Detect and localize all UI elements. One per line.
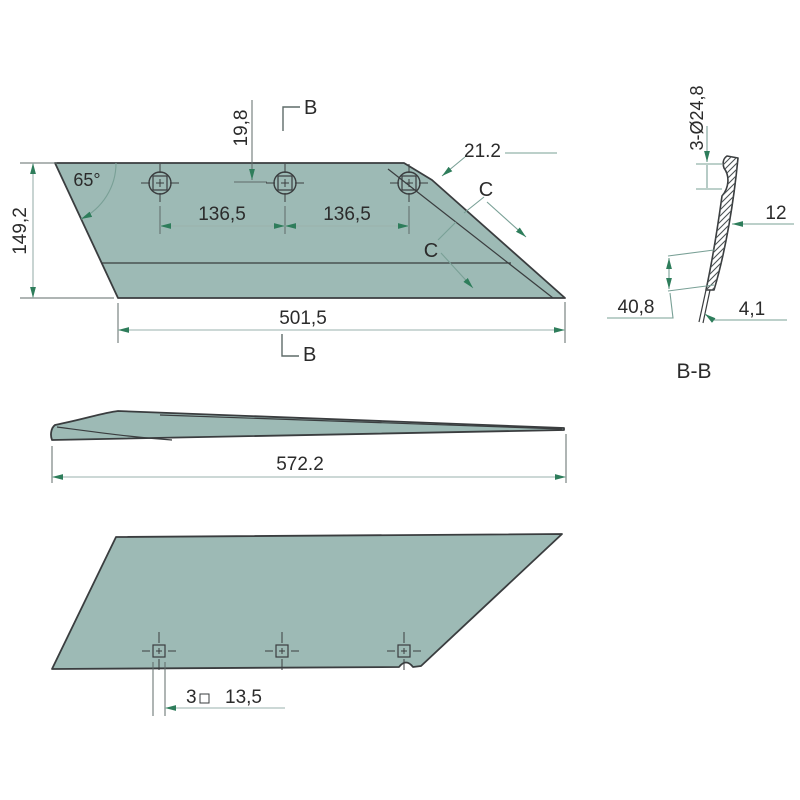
leader-line — [442, 157, 465, 176]
extension-line — [153, 662, 165, 716]
technical-drawing-page: 149,2 65° 19,8 136,5 136,5 21.2 — [0, 0, 800, 800]
dimension-label-width: 501,5 — [279, 308, 327, 329]
dimension-label-angle: 65° — [73, 170, 100, 190]
view-direction-arrow — [487, 202, 526, 237]
square-symbol-icon — [200, 694, 209, 703]
dimension-hole-diameter: 3-Ø24,8 — [687, 85, 722, 189]
dimension-label-edge-thickness: 4,1 — [739, 299, 765, 320]
dimension-label-length: 572.2 — [276, 454, 324, 475]
dimension-label-bevel-width: 21.2 — [464, 141, 501, 162]
dimension-label-spacing-left: 136,5 — [198, 204, 246, 225]
dimension-width: 501,5 — [118, 302, 565, 343]
section-title: B-B — [676, 360, 711, 383]
section-hatch-fill — [706, 156, 738, 290]
section-label-c-lower: C — [424, 240, 438, 262]
section-marker-b-bottom: B — [282, 334, 316, 366]
dimension-label-hole-offset: 19,8 — [231, 110, 252, 147]
dimension-label-hole-spec: 3-Ø24,8 — [687, 85, 707, 150]
plowshare-drawing: 149,2 65° 19,8 136,5 136,5 21.2 — [0, 0, 800, 800]
hole-size-label: 13,5 — [225, 687, 262, 708]
dimension-label-thickness: 12 — [765, 203, 786, 224]
section-bracket — [283, 107, 300, 131]
blade-bottom-view-outline — [52, 534, 562, 669]
hole-count-label: 3 — [186, 687, 197, 708]
dimension-thickness: 12 — [732, 203, 794, 224]
section-bracket — [282, 334, 299, 356]
section-label-b-top: B — [304, 97, 317, 119]
section-marker-b-top: B — [283, 97, 317, 131]
cutting-edge-tip-lines — [699, 290, 710, 323]
dimension-length: 572.2 — [52, 434, 566, 483]
section-view-bb: 3-Ø24,8 12 40,8 4,1 B-B — [607, 85, 794, 383]
dimension-square-hole-size: 3 13,5 — [153, 662, 285, 716]
dimension-label-bevel-length: 40,8 — [618, 297, 655, 318]
section-label-c-upper: C — [479, 179, 493, 201]
dimension-bevel-length: 40,8 — [607, 250, 714, 318]
extension-line — [118, 302, 565, 343]
section-label-b-bottom: B — [303, 344, 316, 366]
tick-line — [696, 164, 722, 189]
dimension-bevel-width: 21.2 — [442, 141, 557, 176]
dimension-edge-thickness: 4,1 — [705, 299, 787, 320]
main-view: 149,2 65° 19,8 136,5 136,5 21.2 — [10, 97, 565, 366]
dimension-label-spacing-right: 136,5 — [323, 204, 371, 225]
dimension-label-height: 149,2 — [10, 207, 31, 255]
bottom-view: 3 13,5 — [52, 534, 562, 716]
side-view: 572.2 — [51, 411, 566, 483]
